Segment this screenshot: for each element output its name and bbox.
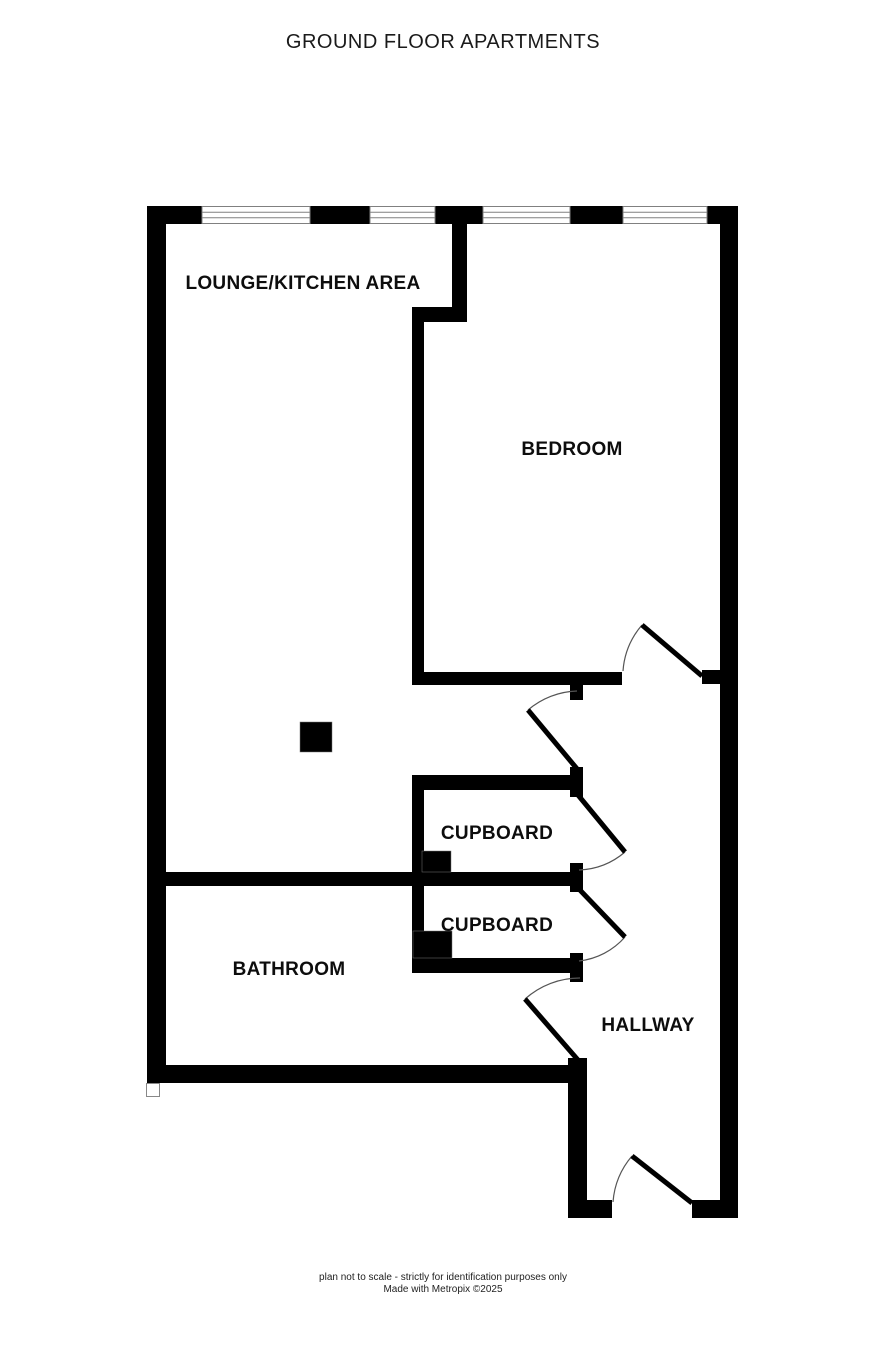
floor-plan-page: GROUND FLOOR APARTMENTS — [0, 0, 886, 1367]
entry-door-leaf — [632, 1156, 692, 1203]
label-bathroom: BATHROOM — [233, 959, 346, 980]
jamb-bedroom-door-right — [702, 670, 720, 684]
wall-cupboard1-top — [412, 775, 570, 790]
window-frame — [202, 207, 310, 224]
footer-credit: Made with Metropix ©2025 — [0, 1284, 886, 1296]
bathroom-door — [525, 978, 580, 1060]
lounge-hallway-door-arc — [528, 691, 577, 710]
room-labels: LOUNGE/KITCHEN AREA BEDROOM CUPBOARD CUP… — [185, 273, 694, 1036]
window-frame — [483, 207, 570, 224]
wall-bedroom-bottom — [412, 672, 622, 685]
bathroom-door-leaf — [525, 999, 578, 1060]
wall-bedroom-left — [412, 307, 424, 685]
window-frame — [623, 207, 707, 224]
walls — [147, 206, 738, 1218]
entry-door-arc — [613, 1156, 632, 1202]
cupboard-top-door-arc — [579, 852, 625, 870]
wall-middle — [147, 872, 583, 886]
label-cupboard-top: CUPBOARD — [441, 823, 553, 844]
fixtures — [147, 722, 453, 1097]
window-frame — [370, 207, 435, 224]
footer: plan not to scale - strictly for identif… — [0, 1272, 886, 1296]
corner-marker — [147, 1084, 160, 1097]
wall-entry-stub-right — [692, 1200, 738, 1218]
lounge-hallway-door — [528, 691, 578, 770]
window-1 — [202, 207, 310, 224]
label-bedroom: BEDROOM — [521, 439, 622, 460]
window-4 — [623, 207, 707, 224]
wall-hallway-left — [568, 1065, 587, 1218]
window-2 — [370, 207, 435, 224]
floor-plan-canvas: LOUNGE/KITCHEN AREA BEDROOM CUPBOARD CUP… — [0, 0, 886, 1367]
cupboard-bottom-door-leaf — [578, 888, 625, 937]
wall-bottom — [147, 1065, 587, 1083]
bedroom-door — [623, 625, 702, 676]
label-lounge-kitchen: LOUNGE/KITCHEN AREA — [185, 273, 420, 294]
wall-entry-stub-left — [568, 1200, 612, 1218]
wall-right — [720, 206, 738, 1218]
cupboard-bottom-door-arc — [579, 937, 625, 961]
window-3 — [483, 207, 570, 224]
wall-cupboard2-bottom — [412, 958, 570, 973]
bedroom-door-arc — [623, 625, 642, 671]
cupboard-top-block — [422, 851, 451, 872]
jamb-hall-door-bottom — [570, 767, 583, 797]
lounge-column — [300, 722, 332, 752]
doors — [525, 625, 702, 1203]
cupboard-bottom-door — [578, 888, 625, 961]
wall-left — [147, 206, 166, 1083]
cupboard-top-door — [578, 795, 625, 870]
entry-door — [613, 1156, 692, 1203]
footer-disclaimer: plan not to scale - strictly for identif… — [0, 1272, 886, 1284]
lounge-hallway-door-leaf — [528, 710, 578, 770]
cupboard-top-door-leaf — [578, 795, 625, 852]
bedroom-door-leaf — [642, 625, 702, 676]
label-cupboard-bottom: CUPBOARD — [441, 915, 553, 936]
label-hallway: HALLWAY — [601, 1015, 694, 1036]
